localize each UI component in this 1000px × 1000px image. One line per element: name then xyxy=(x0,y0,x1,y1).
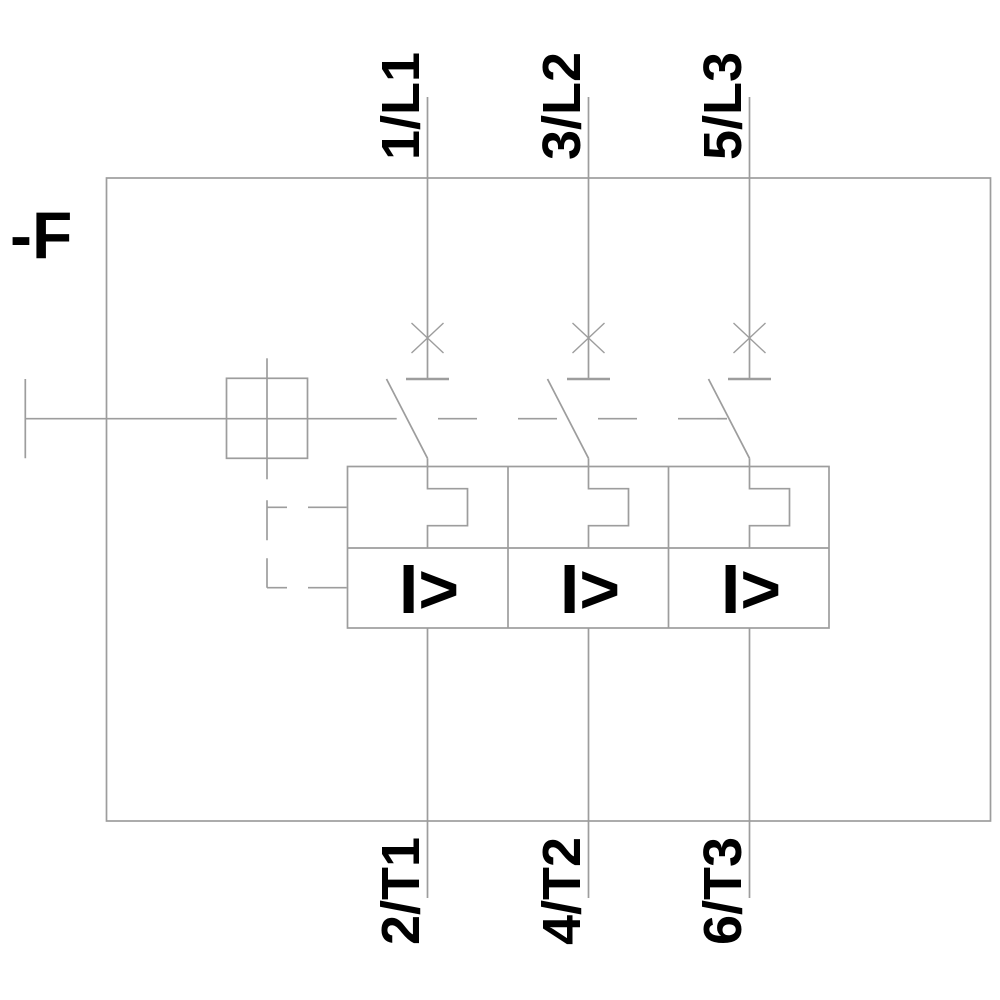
pole-2-overcurrent-symbol: I> xyxy=(560,550,620,628)
pole-3: I> 5/L3 6/T3 xyxy=(693,52,790,945)
trip-linkage xyxy=(267,419,727,588)
pole-2-top-terminal-label: 3/L2 xyxy=(532,52,592,160)
device-designation-label: -F xyxy=(10,198,72,272)
pole-2: I> 3/L2 4/T2 xyxy=(532,52,629,945)
pole-3-top-terminal-label: 5/L3 xyxy=(693,52,753,160)
actuator-mechanism xyxy=(25,358,396,479)
pole-2-bottom-terminal-label: 4/T2 xyxy=(532,837,592,945)
pole-3-overcurrent-symbol: I> xyxy=(721,550,781,628)
schematic-canvas: -F xyxy=(0,0,1000,1000)
pole-1-thermal-overload-hook-icon xyxy=(428,467,468,549)
pole-1: I> 1/L1 2/T1 xyxy=(371,52,468,945)
pole-2-thermal-overload-hook-icon xyxy=(589,467,629,549)
enclosure xyxy=(107,178,991,821)
pole-3-bottom-terminal-label: 6/T3 xyxy=(693,837,753,945)
circuit-breaker-schematic: -F xyxy=(0,0,1000,1000)
pole-3-thermal-overload-hook-icon xyxy=(750,467,790,549)
pole-1-overcurrent-symbol: I> xyxy=(399,550,459,628)
pole-1-top-terminal-label: 1/L1 xyxy=(371,52,431,160)
enclosure-outline xyxy=(107,178,991,821)
pole-1-bottom-terminal-label: 2/T1 xyxy=(371,837,431,945)
